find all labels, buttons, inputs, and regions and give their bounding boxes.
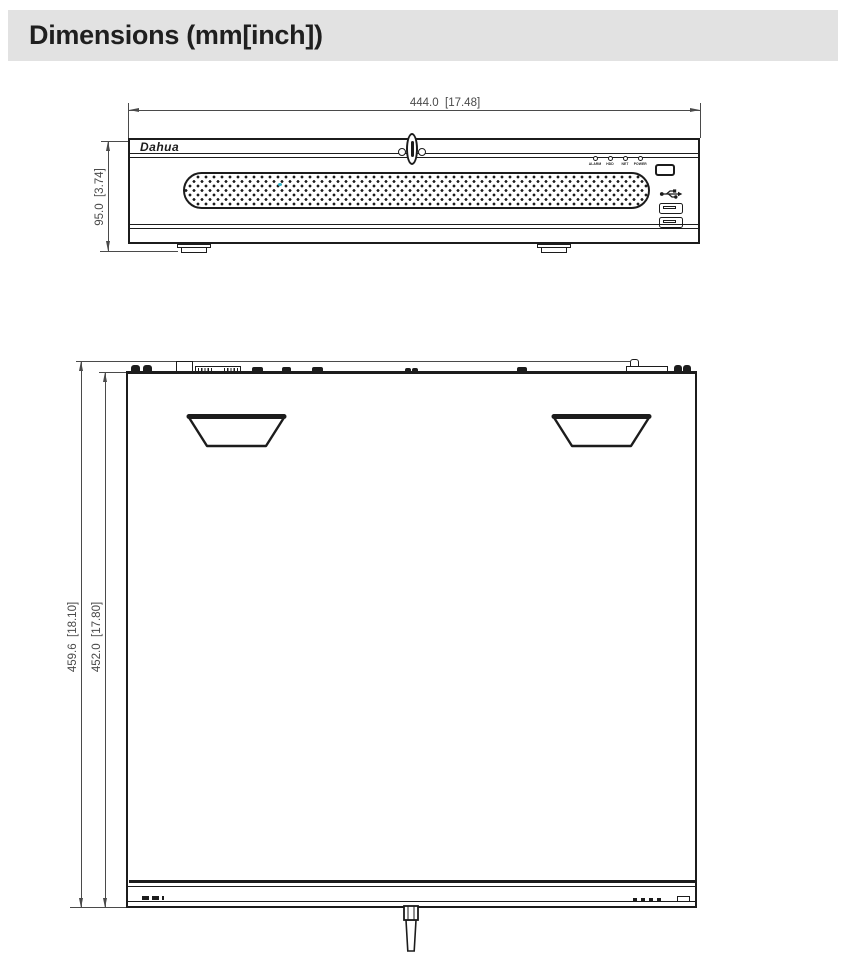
bezel-ir-window xyxy=(677,896,690,902)
depth-inner-dim-line xyxy=(105,372,106,908)
height-dim-extension-bottom xyxy=(100,251,178,252)
page-title: Dimensions (mm[inch]) xyxy=(29,20,323,51)
depth-inner-dim-label: 452.0 [17.80] xyxy=(91,587,103,687)
bezel-led-dot xyxy=(657,898,661,902)
lock-bump-left-icon xyxy=(398,148,406,156)
usb-port-2-slot xyxy=(663,220,676,223)
width-dim-line xyxy=(128,110,700,111)
rear-connector-bump xyxy=(405,368,411,372)
datasheet-dimensions-page: Dimensions (mm[inch]) 444.0 [17.48] 95.0… xyxy=(0,0,846,968)
lock-slot-icon xyxy=(411,141,414,157)
front-panel-bottom-seam-upper xyxy=(130,224,698,225)
usb-port-2 xyxy=(659,217,683,228)
lock-bump-right-icon xyxy=(418,148,426,156)
led-label-hdd: HDD xyxy=(604,162,617,166)
rear-connector-bump xyxy=(683,365,691,372)
bezel-led-dot xyxy=(649,898,653,902)
front-bezel-line-upper xyxy=(127,886,696,887)
usb-port-1-slot xyxy=(663,206,676,209)
rear-connector-bump xyxy=(312,367,323,372)
width-dim-label: 444.0 [17.48] xyxy=(380,97,510,109)
vent-grille xyxy=(183,172,650,209)
rear-connector-bump xyxy=(252,367,263,372)
rear-antenna-knob xyxy=(630,359,639,367)
rear-connector-bump xyxy=(131,365,140,372)
section-header: Dimensions (mm[inch]) xyxy=(8,10,838,61)
foot-left-pad xyxy=(181,248,207,254)
front-panel-bottom-seam-lower xyxy=(130,228,698,229)
grille-accent-dot xyxy=(278,183,282,186)
depth-inner-arrow-bottom xyxy=(103,898,107,908)
height-dim-arrow-bottom xyxy=(106,241,110,251)
height-dim-label: 95.0 [3.74] xyxy=(94,162,106,232)
led-label-net: NET xyxy=(619,162,632,166)
handle-recess-right-icon xyxy=(550,412,654,450)
depth-outer-dim-line xyxy=(81,361,82,908)
width-dim-arrow-left xyxy=(129,108,139,112)
led-label-alarm: ALARM xyxy=(589,162,602,166)
usb-port-1 xyxy=(659,203,683,214)
width-dim-arrow-right xyxy=(690,108,700,112)
led-indicator-power xyxy=(638,156,643,161)
top-panel-outline xyxy=(126,371,697,908)
foot-right-pad xyxy=(541,248,567,254)
bezel-led-dot xyxy=(633,898,637,902)
width-dim-extension-right xyxy=(700,103,701,138)
depth-outer-arrow-bottom xyxy=(79,898,83,908)
rear-connector-bump xyxy=(412,368,418,372)
rear-vga-pins-left xyxy=(198,368,212,371)
bezel-logo-marks xyxy=(142,896,164,900)
height-dim-arrow-top xyxy=(106,141,110,151)
rear-raised-connector xyxy=(176,361,193,372)
rear-connector-bump xyxy=(143,365,152,372)
lock-key-icon xyxy=(398,901,428,957)
rear-connector-bump xyxy=(517,367,527,372)
led-indicator-hdd xyxy=(608,156,613,161)
brand-logo: Dahua xyxy=(140,141,179,154)
led-label-power: POWER xyxy=(634,162,647,166)
depth-outer-arrow-top xyxy=(79,361,83,371)
rear-connector-bump xyxy=(282,367,291,372)
usb-icon xyxy=(659,188,683,200)
bezel-logo-underline xyxy=(142,901,172,902)
depth-inner-arrow-top xyxy=(103,372,107,382)
led-indicator-alarm xyxy=(593,156,598,161)
ir-window-icon xyxy=(655,164,675,176)
handle-recess-left-icon xyxy=(185,412,289,450)
front-bezel-edge-thick xyxy=(129,880,695,883)
depth-outer-extension-top xyxy=(76,361,630,362)
rear-vga-pins-right xyxy=(224,368,238,371)
depth-outer-dim-label: 459.6 [18.10] xyxy=(67,587,79,687)
rear-connector-bump xyxy=(674,365,682,372)
height-dim-line xyxy=(108,141,109,251)
bezel-led-dot xyxy=(641,898,645,902)
led-indicator-net xyxy=(623,156,628,161)
